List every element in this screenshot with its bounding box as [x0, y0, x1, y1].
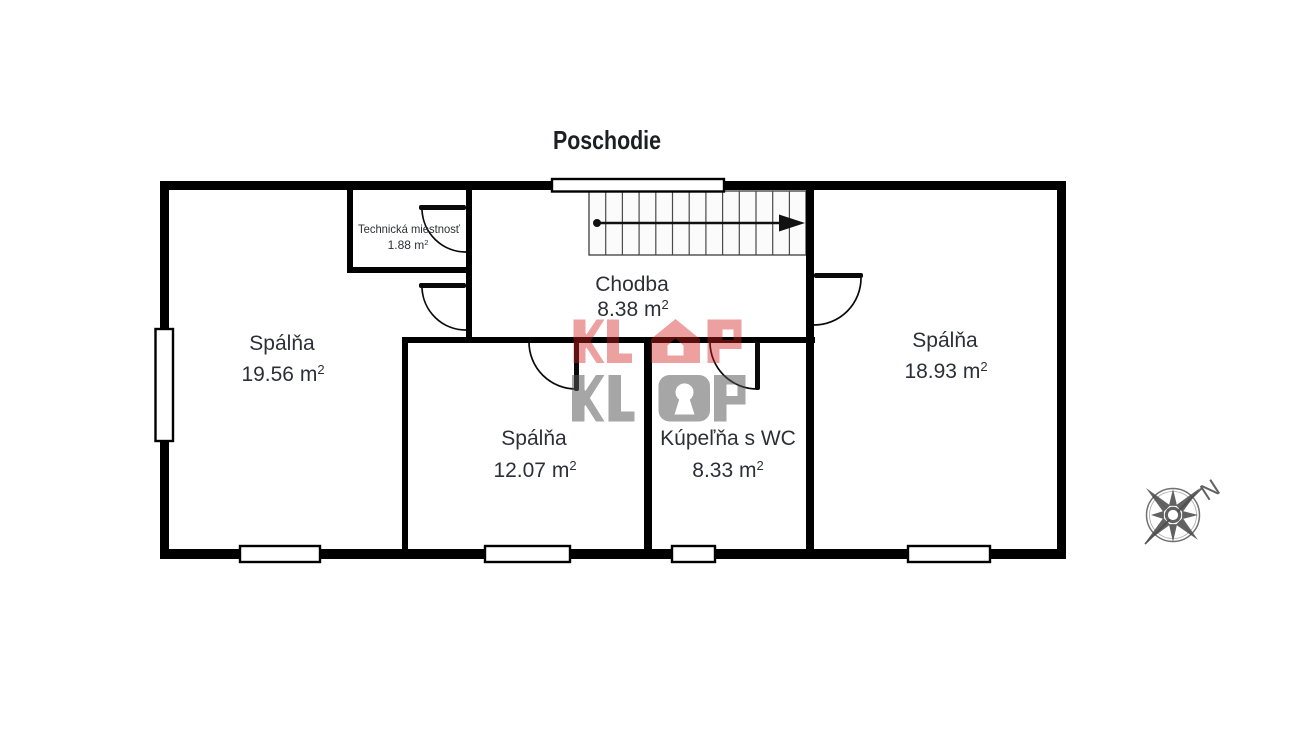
svg-text:12.07 m2: 12.07 m2	[493, 458, 576, 482]
svg-text:19.56 m2: 19.56 m2	[241, 362, 324, 386]
svg-text:Technická miestnosť: Technická miestnosť	[358, 222, 460, 236]
svg-text:Spálňa: Spálňa	[912, 329, 978, 352]
svg-text:Kúpeľňa s WC: Kúpeľňa s WC	[660, 427, 796, 450]
svg-text:8.38 m2: 8.38 m2	[597, 297, 668, 321]
svg-text:Spálňa: Spálňa	[249, 332, 315, 355]
svg-text:Spálňa: Spálňa	[501, 427, 567, 450]
svg-text:8.33 m2: 8.33 m2	[692, 458, 763, 482]
svg-text:Chodba: Chodba	[595, 273, 669, 296]
svg-text:Poschodie: Poschodie	[553, 125, 661, 155]
svg-text:18.93 m2: 18.93 m2	[904, 359, 987, 383]
svg-text:1.88 m2: 1.88 m2	[388, 238, 429, 252]
